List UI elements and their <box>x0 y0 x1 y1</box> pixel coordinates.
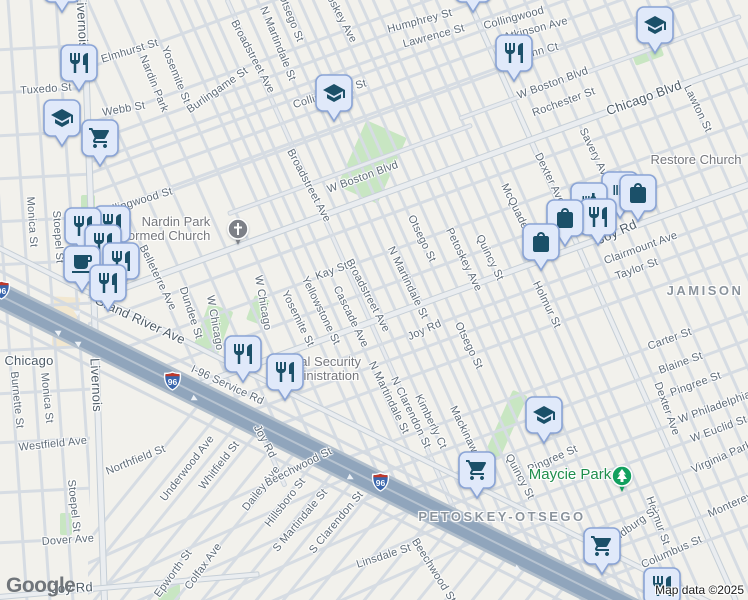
school-pin[interactable] <box>42 98 82 153</box>
blank-pin[interactable] <box>453 0 493 19</box>
grocery-pin[interactable] <box>582 526 622 581</box>
google-logo[interactable]: Google <box>6 574 75 598</box>
grocery-pin[interactable] <box>80 118 120 173</box>
blank-pin[interactable] <box>42 0 82 19</box>
park-tree-pin[interactable] <box>610 464 634 499</box>
church-pin[interactable] <box>226 217 250 252</box>
school-pin[interactable] <box>524 395 564 450</box>
school-pin[interactable] <box>314 73 354 128</box>
shopping-pin[interactable] <box>521 222 561 277</box>
map-canvas[interactable]: ▶▶▶▶▶▶ 96 96 96 LivernoisElmhurst StTuxe… <box>0 0 748 600</box>
restaurant-pin[interactable] <box>88 263 128 318</box>
map-data-attribution: Map data ©2025 <box>655 583 744 597</box>
restaurant-pin[interactable] <box>223 334 263 389</box>
grocery-pin[interactable] <box>457 450 497 505</box>
restaurant-pin[interactable] <box>494 33 534 88</box>
restaurant-pin[interactable] <box>265 352 305 407</box>
restaurant-pin[interactable] <box>59 43 99 98</box>
shopping-pin[interactable] <box>618 173 658 228</box>
pins-layer <box>0 0 748 600</box>
school-pin[interactable] <box>635 5 675 60</box>
